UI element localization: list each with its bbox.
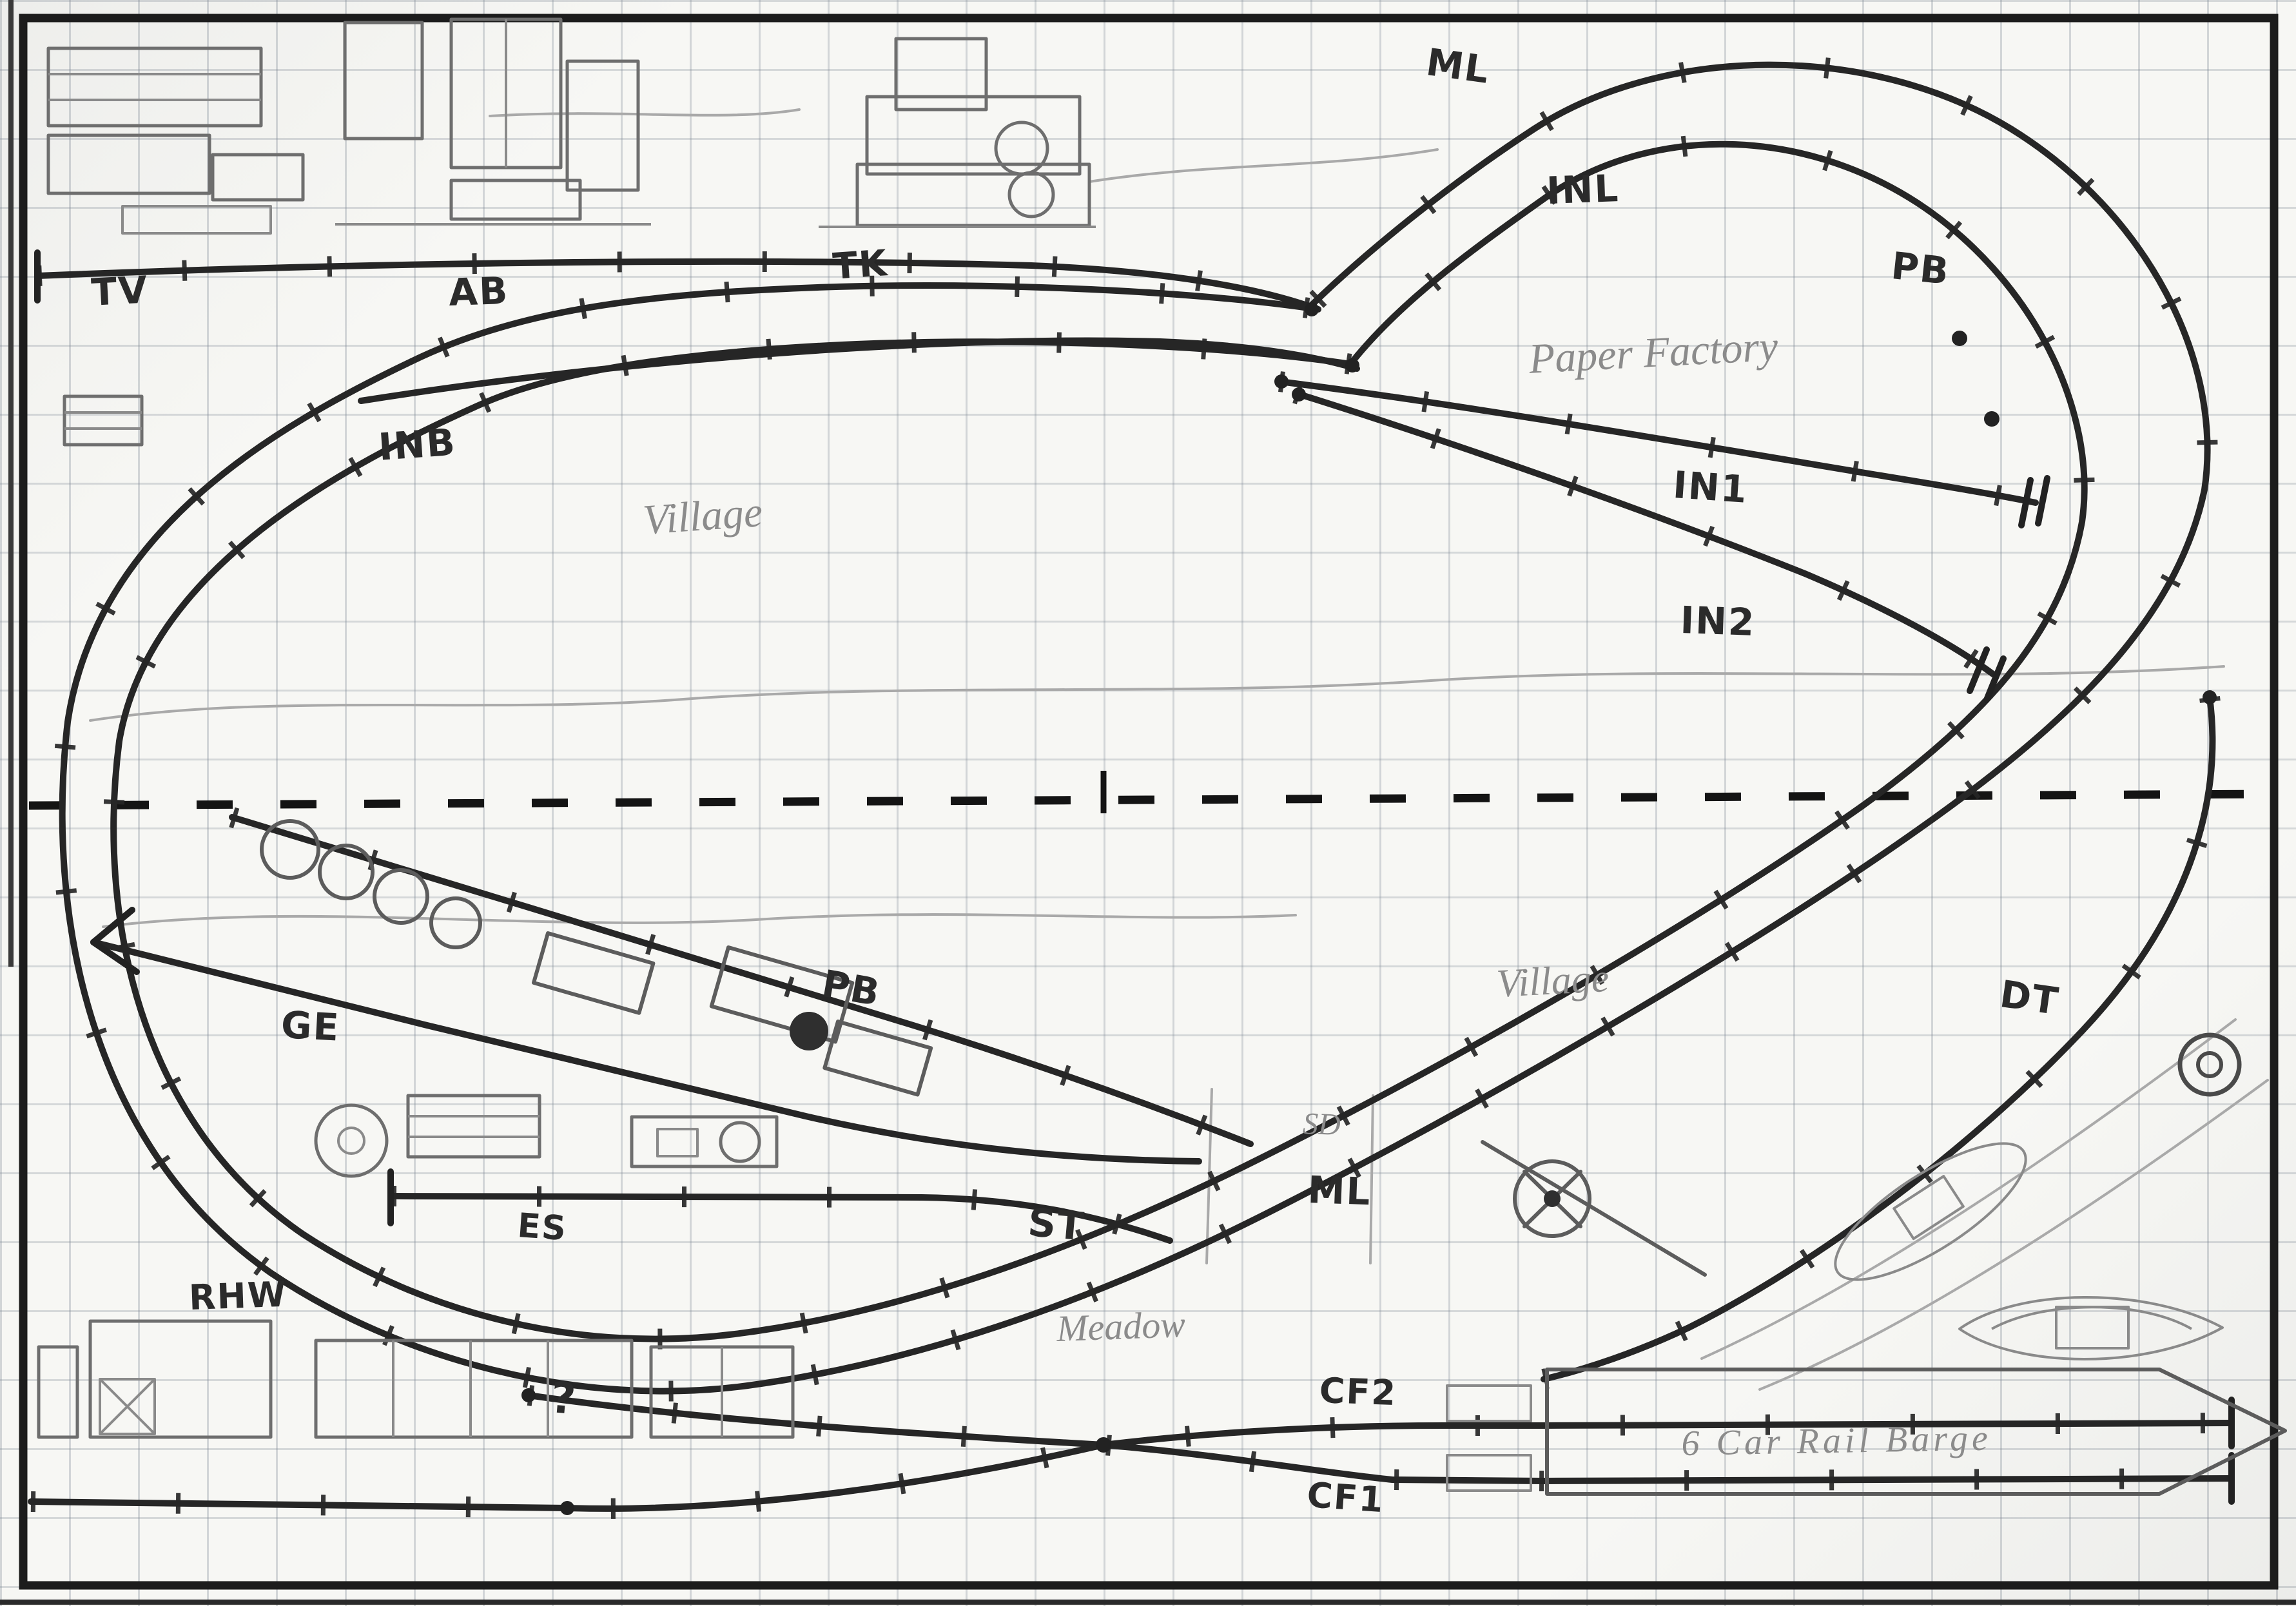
- track-label-st: ST: [1026, 1200, 1087, 1250]
- turnout-marks: [521, 302, 2217, 1515]
- annotation-question-mark: ?: [549, 1373, 579, 1424]
- harbour-crane: [1483, 1142, 1705, 1275]
- track-label-tv: TV: [90, 267, 150, 314]
- track-label-inb: INB: [377, 420, 458, 469]
- track-label-dt: DT: [1998, 972, 2062, 1023]
- track-label-ge: GE: [280, 1003, 341, 1050]
- buildings-es-area: [316, 1096, 777, 1176]
- tv-storage-track: [37, 253, 1318, 309]
- tug-boat: [1817, 1120, 2044, 1304]
- scenery-label-meadow: Meadow: [1056, 1302, 1186, 1350]
- buildings-factory-tower: [819, 39, 1096, 227]
- in1-siding: [1279, 382, 2047, 525]
- track-label-inl: INL: [1546, 166, 1620, 213]
- ge-sidings: [93, 817, 1250, 1161]
- track-label-cf2: CF2: [1319, 1370, 1397, 1413]
- scenery-label-village-top: Village: [641, 488, 764, 545]
- track-label-tk: TK: [832, 242, 890, 288]
- track-label-ab: AB: [448, 269, 509, 314]
- scenery-label-rail-barge: 6 Car Rail Barge: [1681, 1418, 1992, 1464]
- track-label-pb-top: PB: [1889, 244, 1952, 293]
- track-label-ml-top: ML: [1424, 40, 1493, 92]
- track-label-cf1: CF1: [1306, 1475, 1386, 1520]
- track-label-es: ES: [516, 1206, 569, 1248]
- scenery-label-village-low: Village: [1495, 956, 1610, 1007]
- dock-target-circle: [2180, 1035, 2239, 1094]
- track-label-ml-low: ML: [1307, 1168, 1372, 1214]
- track-label-rhw: RHW: [188, 1274, 287, 1318]
- buildings-top-middle: [335, 19, 651, 224]
- scenery-label-sd: SD: [1302, 1106, 1341, 1143]
- motor-boat: [1960, 1297, 2223, 1359]
- dashed-centre-line: [29, 771, 2274, 813]
- track-plan-svg: [0, 0, 2296, 1606]
- track-label-in1: IN1: [1671, 463, 1749, 512]
- buildings-top-left: [48, 48, 303, 445]
- track-label-in2: IN2: [1680, 598, 1756, 644]
- graph-paper-sheet: TV AB TK ML INL PB INB Village Paper Fac…: [0, 0, 2296, 1606]
